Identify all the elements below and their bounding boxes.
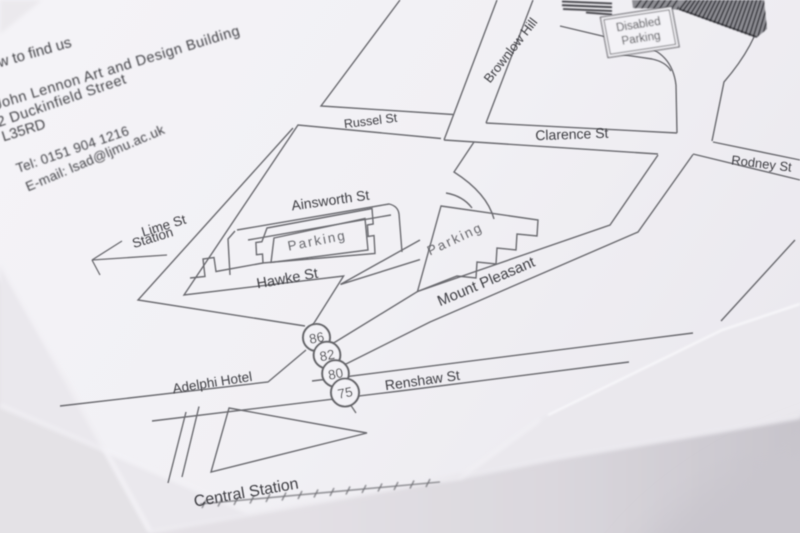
svg-text:86: 86: [308, 329, 326, 347]
svg-text:Clarence St: Clarence St: [535, 125, 609, 144]
svg-text:82: 82: [318, 347, 336, 365]
svg-text:75: 75: [336, 384, 354, 402]
svg-text:80: 80: [327, 365, 345, 383]
